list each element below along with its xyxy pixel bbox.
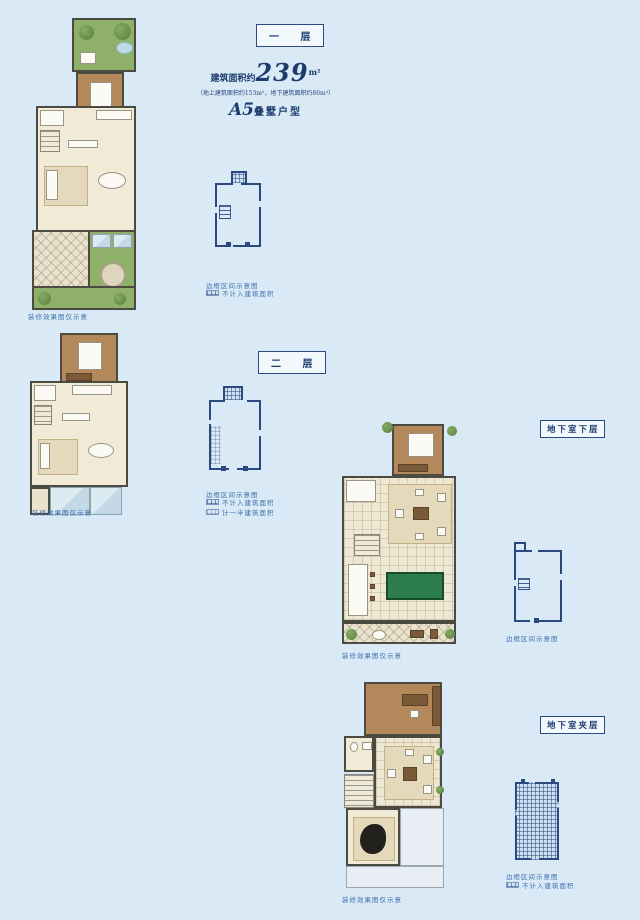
- floor2-label: 二 层: [258, 351, 326, 374]
- armchair: [423, 755, 432, 764]
- tree: [114, 293, 126, 305]
- legend-label: 不计入建筑面积: [222, 497, 275, 507]
- tree: [114, 23, 131, 40]
- area-line: 建筑面积约239m²: [178, 58, 353, 87]
- front-garden: [72, 18, 136, 72]
- unit-type-line: A5叠墅户型: [178, 100, 353, 120]
- floorplan-first-floor: [10, 18, 192, 310]
- legend-label: 不计入建筑面积: [522, 880, 575, 890]
- desk-chair: [410, 710, 419, 718]
- grand-piano: [360, 824, 386, 854]
- armchair: [437, 527, 446, 536]
- area-note: （地上建筑面积约153m²，地下建筑面积约86m²）: [178, 88, 353, 97]
- keyplan-caption: 边框区间示意图: [506, 633, 559, 643]
- bedroom: [60, 333, 118, 383]
- sofa: [40, 443, 50, 469]
- balcony: [90, 487, 122, 515]
- gym-equipment: [410, 630, 424, 638]
- foyer-cabinet: [346, 480, 376, 502]
- keyplan-hatch-area: [223, 386, 243, 400]
- wardrobe: [398, 464, 428, 472]
- garden-feature: [100, 262, 126, 288]
- tree: [445, 629, 455, 639]
- kitchen-counter: [72, 385, 112, 395]
- dining-table: [98, 172, 126, 189]
- garden-strip: [32, 286, 136, 310]
- plan-caption: 装修效果图仅示意: [32, 507, 92, 517]
- patio-table: [372, 630, 386, 640]
- floorplan-basement-mezzanine: [336, 676, 458, 890]
- keyplan-first-floor: [211, 171, 265, 257]
- hatch-swatch: [506, 882, 519, 888]
- legend-item: 不计入建筑面积: [206, 288, 275, 298]
- recreation-room: [342, 476, 456, 622]
- area-value: 239: [255, 58, 308, 87]
- sitting-rug: [388, 484, 452, 544]
- bookshelf: [432, 686, 441, 726]
- hatch-swatch-light: [206, 509, 219, 515]
- legend-item: 计一半建筑面积: [206, 507, 275, 517]
- tree: [38, 292, 51, 305]
- lightwell: [346, 866, 444, 888]
- living-dining-room: [30, 381, 128, 487]
- void-over-below: [400, 808, 444, 866]
- plan-caption: 装修效果图仅示意: [342, 650, 402, 660]
- bar-stool: [370, 584, 375, 589]
- keyplan-stairs: [219, 205, 231, 219]
- keyplan-basement-mezzanine: [511, 778, 563, 866]
- legend-label: 不计入建筑面积: [222, 288, 275, 298]
- armchair: [415, 533, 424, 540]
- potted-plant: [436, 786, 444, 794]
- floorplan-basement-lower: [320, 418, 460, 646]
- billiard-table: [386, 572, 444, 600]
- basement-lower-label: 地下室下层: [540, 420, 605, 438]
- plan-caption: 装修效果图仅示意: [28, 311, 88, 321]
- plan-caption: 装修效果图仅示意: [342, 894, 402, 904]
- armchair: [437, 493, 446, 502]
- bar-stool: [370, 572, 375, 577]
- bedroom: [392, 424, 444, 476]
- sofa: [46, 170, 58, 200]
- floor1-label: 一 层: [256, 24, 324, 47]
- bar-counter: [348, 564, 368, 616]
- bar-stool: [370, 596, 375, 601]
- keyplan-second-floor: [207, 386, 263, 480]
- armchair: [395, 509, 404, 518]
- toilet: [350, 742, 358, 752]
- unit-type-suffix: 叠墅户型: [254, 107, 302, 118]
- tree: [346, 629, 357, 640]
- hatch-swatch: [206, 499, 219, 505]
- keyplan-basement-lower: [512, 540, 564, 630]
- potted-plant: [447, 426, 457, 436]
- area-prefix: 建筑面积约: [210, 74, 255, 84]
- bathroom: [34, 385, 56, 401]
- desk: [402, 694, 428, 706]
- area-headline: 建筑面积约239m² （地上建筑面积约153m²，地下建筑面积约86m²） A5…: [178, 58, 353, 120]
- bed: [408, 433, 434, 457]
- potted-plant: [382, 422, 393, 433]
- kitchen-island: [68, 140, 98, 148]
- legend-label: 计一半建筑面积: [222, 507, 275, 517]
- armchair: [405, 749, 414, 756]
- basement-mezzanine-label: 地下室夹层: [540, 716, 605, 734]
- pond: [116, 42, 133, 54]
- patio: [32, 230, 90, 288]
- stairs: [40, 130, 60, 152]
- armchair: [415, 489, 424, 496]
- dining-table: [88, 443, 114, 458]
- unit-type-code: A5: [229, 100, 254, 120]
- area-unit: m²: [309, 67, 321, 77]
- floorplan-second-floor: [10, 333, 136, 519]
- potted-plant: [436, 748, 444, 756]
- gym-equipment: [430, 629, 438, 639]
- kitchen-counter: [96, 110, 132, 120]
- tea-table: [413, 507, 429, 520]
- stairs: [354, 534, 380, 556]
- bathroom: [40, 110, 64, 126]
- keyplan-half-area: [211, 426, 221, 464]
- wardrobe: [66, 373, 92, 381]
- sitting-rug: [384, 746, 434, 800]
- sink: [362, 742, 372, 750]
- armchair: [423, 785, 432, 794]
- garden-deck: [80, 52, 96, 64]
- sunken-courtyard: [342, 622, 456, 644]
- floorplan-flyer: 一 层 建筑面积约239m² （地上建筑面积约153m²，地下建筑面积约86m²…: [0, 0, 640, 920]
- stairs: [344, 774, 374, 808]
- keyplan-hatch-area: [515, 782, 559, 860]
- skylight: [113, 234, 132, 248]
- study: [364, 682, 442, 736]
- sitting-room: [374, 736, 442, 808]
- hatch-swatch: [206, 290, 219, 296]
- living-dining-room: [36, 106, 136, 232]
- legend-item: 不计入建筑面积: [506, 880, 575, 890]
- stairs: [34, 405, 52, 425]
- keyplan-stairs: [518, 578, 530, 590]
- bathroom: [344, 736, 374, 772]
- skylight: [92, 234, 111, 248]
- legend-item: 不计入建筑面积: [206, 497, 275, 507]
- tree: [79, 25, 94, 40]
- tea-table: [403, 767, 417, 781]
- armchair: [387, 769, 396, 778]
- bed: [78, 342, 102, 370]
- kitchen-island: [62, 413, 90, 421]
- piano-room: [346, 808, 400, 866]
